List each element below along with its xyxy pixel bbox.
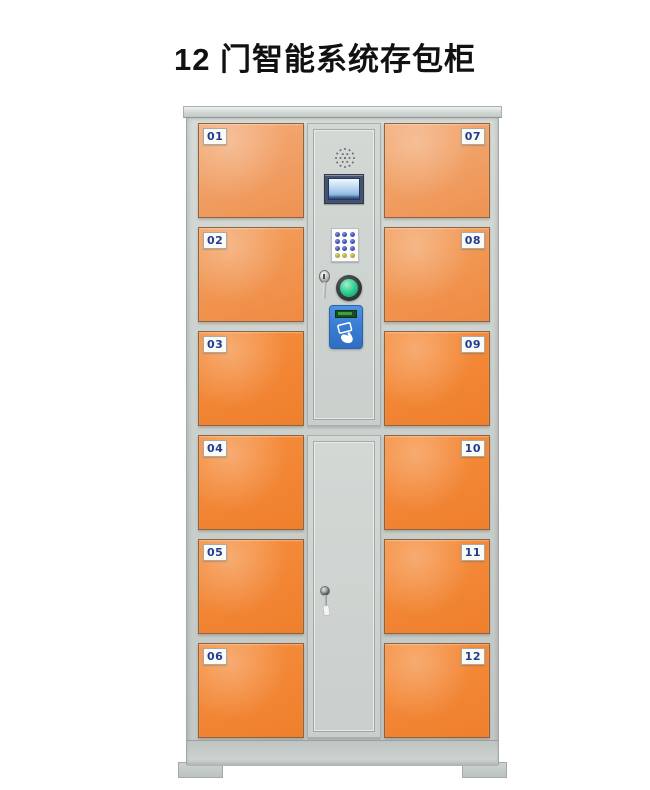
keypad-key[interactable] <box>350 253 355 258</box>
numeric-keypad[interactable] <box>331 228 359 262</box>
locker-door-04[interactable]: 04 <box>198 435 304 530</box>
service-door[interactable] <box>307 435 381 738</box>
locker-door-12[interactable]: 12 <box>384 643 490 738</box>
locker-door-08[interactable]: 08 <box>384 227 490 322</box>
cabinet-top-cap <box>183 106 502 118</box>
keypad-key[interactable] <box>350 232 355 237</box>
door-number-label: 07 <box>461 128 485 145</box>
keypad-key[interactable] <box>335 239 340 244</box>
card-reader[interactable] <box>329 305 363 349</box>
green-confirm-button[interactable] <box>336 275 362 301</box>
locker-door-02[interactable]: 02 <box>198 227 304 322</box>
key-shaft-icon <box>323 282 327 299</box>
keypad-key[interactable] <box>335 232 340 237</box>
page-title: 12 门智能系统存包柜 <box>0 34 650 79</box>
product-photo-page: 12 门智能系统存包柜 01 02 03 04 05 06 <box>0 0 650 790</box>
lcd-display <box>324 174 364 204</box>
locker-door-03[interactable]: 03 <box>198 331 304 426</box>
key-in-lock[interactable] <box>317 270 333 304</box>
locker-cabinet: 01 02 03 04 05 06 <box>183 106 503 782</box>
keypad-key[interactable] <box>342 239 347 244</box>
locker-door-01[interactable]: 01 <box>198 123 304 218</box>
locker-door-09[interactable]: 09 <box>384 331 490 426</box>
keyhole-slot-icon <box>324 595 327 605</box>
keyhole-lock[interactable] <box>320 586 334 618</box>
cabinet-body: 01 02 03 04 05 06 <box>186 117 499 765</box>
keypad-key[interactable] <box>342 253 347 258</box>
locker-door-07[interactable]: 07 <box>384 123 490 218</box>
door-number-label: 05 <box>203 544 227 561</box>
swipe-card-icon <box>337 321 357 347</box>
door-number-label: 06 <box>203 648 227 665</box>
control-panel <box>307 123 381 426</box>
door-number-label: 08 <box>461 232 485 249</box>
door-number-label: 12 <box>461 648 485 665</box>
left-door-column: 01 02 03 04 05 06 <box>198 123 304 738</box>
door-number-label: 02 <box>203 232 227 249</box>
door-number-label: 03 <box>203 336 227 353</box>
door-number-label: 10 <box>461 440 485 457</box>
locker-door-06[interactable]: 06 <box>198 643 304 738</box>
door-number-label: 04 <box>203 440 227 457</box>
keypad-key[interactable] <box>335 246 340 251</box>
locker-door-11[interactable]: 11 <box>384 539 490 634</box>
cabinet-base <box>187 740 498 766</box>
keypad-key[interactable] <box>350 239 355 244</box>
reader-display <box>335 310 357 318</box>
speaker-grill-icon <box>333 146 357 170</box>
keypad-key[interactable] <box>342 246 347 251</box>
keypad-key[interactable] <box>342 232 347 237</box>
control-column <box>307 123 381 738</box>
key-tag-icon <box>322 605 330 617</box>
door-number-label: 09 <box>461 336 485 353</box>
door-number-label: 01 <box>203 128 227 145</box>
locker-door-10[interactable]: 10 <box>384 435 490 530</box>
right-door-column: 07 08 09 10 11 12 <box>384 123 490 738</box>
lcd-screen <box>328 178 360 200</box>
keypad-key[interactable] <box>335 253 340 258</box>
door-number-label: 11 <box>461 544 485 561</box>
locker-door-05[interactable]: 05 <box>198 539 304 634</box>
keypad-key[interactable] <box>350 246 355 251</box>
